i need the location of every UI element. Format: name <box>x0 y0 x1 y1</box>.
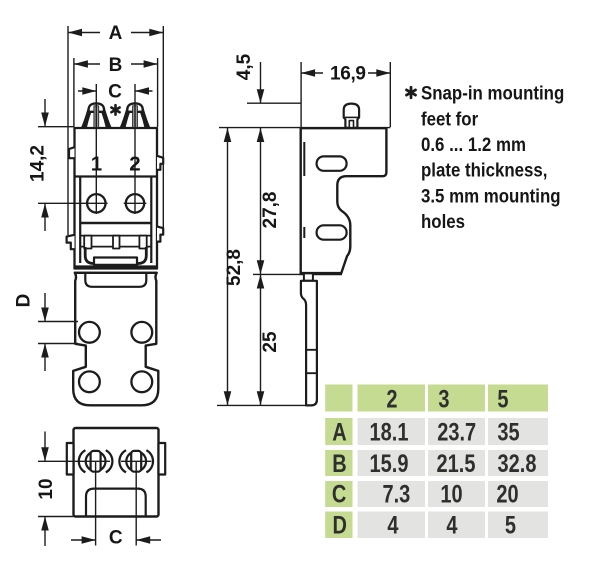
svg-text:32.8: 32.8 <box>498 450 537 478</box>
svg-text:21.5: 21.5 <box>437 450 476 478</box>
svg-text:4,5: 4,5 <box>234 53 255 80</box>
svg-text:A: A <box>109 23 123 44</box>
svg-text:Snap-in mounting: Snap-in mounting <box>421 81 564 103</box>
svg-text:A: A <box>332 418 346 446</box>
svg-text:15.9: 15.9 <box>370 450 409 478</box>
svg-text:27,8: 27,8 <box>260 192 281 229</box>
svg-text:2: 2 <box>129 153 140 176</box>
svg-text:feet for: feet for <box>421 107 478 129</box>
svg-text:4: 4 <box>446 511 457 539</box>
svg-text:2: 2 <box>386 386 397 414</box>
svg-text:16,9: 16,9 <box>330 64 366 85</box>
svg-text:52,8: 52,8 <box>224 249 245 286</box>
svg-text:4: 4 <box>387 511 398 539</box>
svg-text:25: 25 <box>260 331 281 353</box>
svg-text:B: B <box>332 450 346 478</box>
svg-text:0.6 ... 1.2 mm: 0.6 ... 1.2 mm <box>421 133 526 155</box>
svg-text:D: D <box>14 294 35 308</box>
svg-text:C: C <box>109 528 123 549</box>
svg-text:plate thickness,: plate thickness, <box>421 159 547 181</box>
svg-text:20: 20 <box>496 480 518 508</box>
svg-text:C: C <box>108 82 122 103</box>
svg-text:35: 35 <box>497 418 519 446</box>
svg-text:10: 10 <box>440 480 462 508</box>
svg-text:3: 3 <box>438 386 449 414</box>
svg-text:D: D <box>333 511 347 539</box>
svg-text:5: 5 <box>505 511 516 539</box>
svg-text:C: C <box>332 480 346 508</box>
svg-text:14,2: 14,2 <box>28 145 49 182</box>
svg-text:7.3: 7.3 <box>383 480 411 508</box>
svg-text:10: 10 <box>36 478 57 499</box>
svg-text:18.1: 18.1 <box>370 418 409 446</box>
svg-text:5: 5 <box>497 386 508 414</box>
svg-text:B: B <box>109 55 123 76</box>
svg-text:1: 1 <box>91 153 102 176</box>
svg-text:3.5 mm mounting: 3.5 mm mounting <box>421 184 561 206</box>
svg-text:holes: holes <box>421 210 465 232</box>
svg-text:23.7: 23.7 <box>437 418 476 446</box>
